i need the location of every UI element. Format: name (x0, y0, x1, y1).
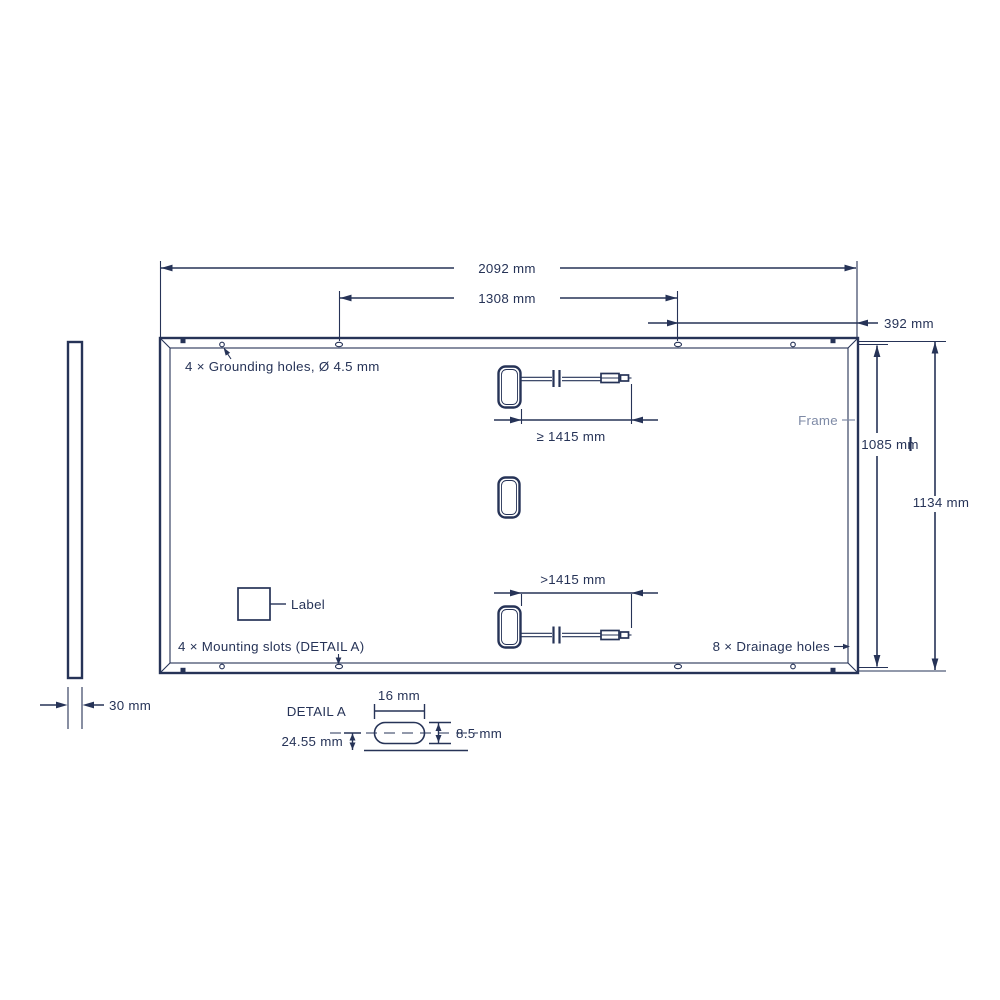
mounting-slots-note: 4 × Mounting slots (DETAIL A) (178, 639, 364, 654)
panel-dimension-drawing: 30 mm 2092 mm (0, 0, 1000, 1000)
drainage-holes-note: 8 × Drainage holes (713, 639, 830, 654)
nameplate-label: Label (291, 597, 325, 612)
cable-bottom-dim-text: >1415 mm (540, 572, 606, 587)
thickness-extension-lines (68, 687, 82, 729)
detail-a: DETAIL A 16 mm 8.5 mm 24.55 mm (281, 688, 502, 751)
mounting-slot-shape (375, 723, 425, 744)
thickness-dim-text: 30 mm (109, 698, 151, 713)
mechanical-drawing-page: 30 mm 2092 mm (0, 0, 1000, 1000)
overall-height-dim-text: 1134 mm (913, 495, 970, 510)
side-view: 30 mm (40, 342, 151, 729)
junction-box-middle (499, 478, 520, 518)
detail-a-title: DETAIL A (287, 704, 346, 719)
slot-span-dim-text: 1308 mm (478, 291, 536, 306)
top-dimensions: 2092 mm 1308 mm 392 mm (161, 261, 934, 341)
connector-top-tip (621, 375, 629, 381)
slot-offset-dim-text: 24.55 mm (281, 734, 343, 749)
grounding-holes-note: 4 × Grounding holes, Ø 4.5 mm (185, 359, 380, 374)
connector-bottom-tip (621, 632, 629, 638)
side-view-profile (68, 342, 82, 678)
cable-top-dim-text: ≥ 1415 mm (536, 429, 605, 444)
slot-height-dim-text: 8.5 mm (456, 726, 502, 741)
slot-width-dim-text: 16 mm (378, 688, 420, 703)
thickness-arrow-left (56, 702, 68, 709)
right-dimensions: 1085 mm 1134 mm (859, 342, 969, 672)
overall-width-dim-text: 2092 mm (478, 261, 536, 276)
nameplate-box (238, 588, 270, 620)
thickness-arrow-right (83, 702, 95, 709)
frame-label: Frame (798, 413, 838, 428)
slot-edge-dim-text: 392 mm (884, 316, 934, 331)
slot-width-dim (375, 704, 425, 719)
